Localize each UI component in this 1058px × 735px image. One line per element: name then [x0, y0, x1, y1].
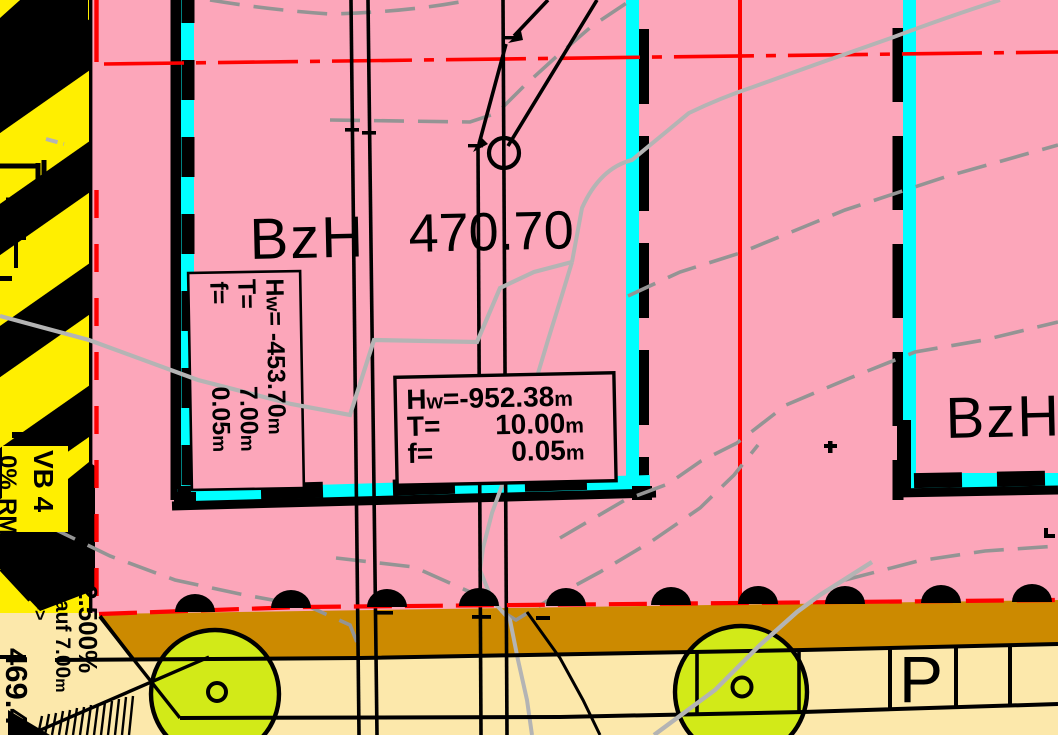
- svg-text:T=: T=: [232, 279, 261, 309]
- svg-text:2.500%: 2.500%: [73, 585, 103, 673]
- svg-text:BzH: BzH: [945, 383, 1058, 451]
- svg-text:0%: 0%: [0, 455, 21, 490]
- svg-text:BzH: BzH: [249, 204, 366, 272]
- svg-text:->: ->: [30, 604, 50, 621]
- svg-text:VB 4: VB 4: [28, 450, 59, 513]
- svg-text:469.4: 469.4: [0, 648, 34, 726]
- svg-text:470.70: 470.70: [408, 200, 574, 264]
- svg-text:f=: f=: [407, 438, 433, 470]
- svg-text:P: P: [899, 642, 943, 716]
- svg-text:f=: f=: [204, 281, 232, 304]
- svg-text:RM: RM: [0, 498, 21, 535]
